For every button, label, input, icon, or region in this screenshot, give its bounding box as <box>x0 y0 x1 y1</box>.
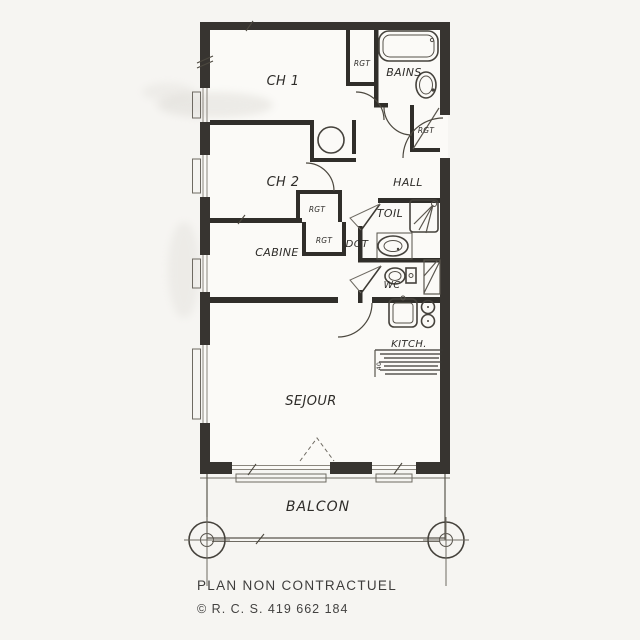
wall-left-seg <box>200 292 210 345</box>
scanned-floor-plan-page: CH 1 BAINS RGT RGT CH 2 HALL TOIL RGT RG… <box>0 0 640 640</box>
closet-label-rgt-hall: RGT <box>418 126 435 135</box>
floor-plan-drawing: CH 1 BAINS RGT RGT CH 2 HALL TOIL RGT RG… <box>0 0 640 640</box>
closet-rgt-ch1-wall <box>346 82 378 86</box>
closet-rgt-ch2-wall <box>296 190 300 222</box>
wall-bottom-seg <box>200 462 232 474</box>
wall-bains-left <box>374 30 379 107</box>
wall-left-seg <box>200 122 210 155</box>
wall-ch1-bottom <box>210 120 310 125</box>
closet-label-rgt-dgt: RGT <box>316 236 333 245</box>
wall-right-seg <box>440 22 450 115</box>
scan-smudge <box>168 222 200 318</box>
room-label-dgt: DGT <box>346 239 369 250</box>
wall-right-seg <box>440 158 450 474</box>
room-label-hall: HALL <box>393 176 423 189</box>
room-label-balcon: BALCON <box>286 499 350 515</box>
balcony-post-left <box>184 517 230 586</box>
alcove-wall <box>310 120 314 162</box>
closet-label-rgt-ch1: RGT <box>354 59 371 68</box>
closet-rgt-hall-wall <box>410 148 440 152</box>
room-label-bains: BAINS <box>386 66 422 79</box>
room-label-toil: TOIL <box>377 207 403 220</box>
wall-bottom-seg <box>330 462 372 474</box>
closet-rgt-ch2-wall <box>296 190 342 194</box>
alcove-wall <box>310 158 356 162</box>
alcove-wall <box>352 120 356 154</box>
closet-rgt-dgt-wall <box>302 222 306 256</box>
wall-left-seg <box>200 22 210 88</box>
room-label-wc: WC <box>384 280 401 291</box>
closet-rgt-ch1-wall <box>346 30 350 86</box>
scan-smudge <box>142 83 194 101</box>
wall-ch2-cabine <box>210 218 302 223</box>
kitchen-dimension: 40 <box>376 362 383 370</box>
balcony-post-right <box>423 517 469 586</box>
closet-rgt-ch2-wall <box>338 190 342 222</box>
registration-text: © R. C. S. 419 662 184 <box>197 602 348 616</box>
room-label-sejour: SEJOUR <box>285 394 336 409</box>
disclaimer-text: PLAN NON CONTRACTUEL <box>197 578 397 593</box>
closet-label-rgt-ch2: RGT <box>309 205 326 214</box>
wall-left-seg <box>200 197 210 255</box>
room-label-kitch: KITCH. <box>391 339 427 350</box>
balcony <box>184 474 469 586</box>
room-label-cabine: CABINE <box>255 246 299 259</box>
room-label-ch2: CH 2 <box>267 175 300 190</box>
closet-rgt-dgt-wall <box>302 252 346 256</box>
wall-bottom-seg <box>416 462 450 474</box>
room-label-ch1: CH 1 <box>267 74 300 89</box>
wall-top <box>200 22 450 30</box>
closet-rgt-hall-wall <box>410 105 414 152</box>
wall-sejour-top-left <box>210 297 338 303</box>
